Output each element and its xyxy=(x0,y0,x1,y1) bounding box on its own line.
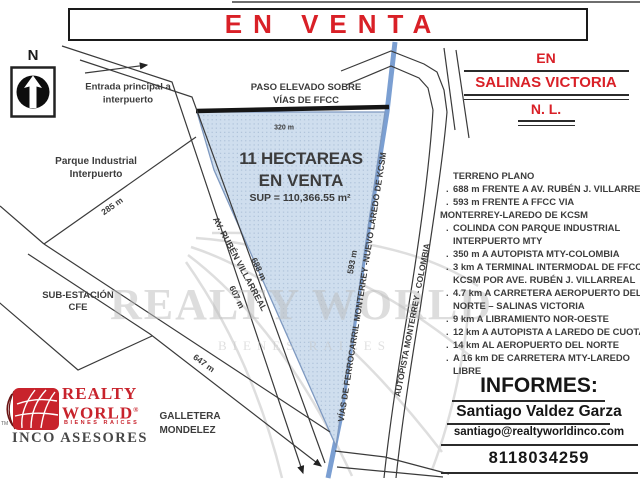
compass-rose-icon xyxy=(10,66,56,119)
detail-line: .14 km AL AEROPUERTO DEL NORTE xyxy=(440,338,640,351)
location-line1: EN xyxy=(454,50,638,66)
detail-text: 593 m FRENTE A FFCC VIA xyxy=(453,196,574,207)
detail-text: KCSM POR AVE. RUBÉN J. VILLARREAL xyxy=(453,274,635,285)
detail-line: INTERPUERTO MTY xyxy=(440,234,640,247)
contact-phone: 8118034259 xyxy=(440,449,638,468)
detail-line: MONTERREY-LAREDO DE KCSM xyxy=(440,208,640,221)
registered-mark: ® xyxy=(133,406,139,414)
detail-bullet: . xyxy=(446,182,449,195)
rule xyxy=(518,120,575,122)
logo-world-text: WORLD® xyxy=(62,402,139,422)
property-title-line2: EN VENTA xyxy=(259,171,344,191)
detail-line: .3 km A TERMINAL INTERMODAL DE FFCC xyxy=(440,260,640,273)
detail-line: KCSM POR AVE. RUBÉN J. VILLARREAL xyxy=(440,273,640,286)
detail-bullet: . xyxy=(446,286,449,299)
logo-tagline: BIENES RAICES xyxy=(64,420,139,426)
compass: N xyxy=(10,46,56,124)
detail-text: 350 m A AUTOPISTA MTY-COLOMBIA xyxy=(453,248,620,259)
location-line2: SALINAS VICTORIA xyxy=(454,74,638,91)
property-details-list: TERRENO PLANO.688 m FRENTE A AV. RUBÉN J… xyxy=(440,169,640,377)
entrance-label: Entrada principal a interpuerto xyxy=(85,82,171,107)
for-sale-banner: EN VENTA xyxy=(68,8,588,41)
compass-north-label: N xyxy=(10,46,56,66)
detail-line: .4.7 km A CARRETERA AEROPUERTO DEL xyxy=(440,286,640,299)
detail-text: INTERPUERTO MTY xyxy=(453,235,542,246)
detail-text: MONTERREY-LAREDO DE KCSM xyxy=(440,209,588,220)
detail-line: .12 km A AUTOPISTA A LAREDO DE CUOTA xyxy=(440,325,640,338)
contact-email: santiago@realtyworldinco.com xyxy=(440,426,638,438)
rule xyxy=(447,423,610,425)
detail-text: 688 m FRENTE A AV. RUBÉN J. VILLARREAL xyxy=(453,183,640,194)
rule xyxy=(464,70,629,72)
bottom-road-upper xyxy=(335,451,449,474)
watermark-text: REALTY WORLD xyxy=(110,279,493,330)
parque-edge-nw xyxy=(0,206,44,244)
detail-text: COLINDA CON PARQUE INDUSTRIAL xyxy=(453,222,620,233)
cfe-substation-label: SUB-ESTACIÓN CFE xyxy=(42,290,114,314)
parque-edge-285 xyxy=(44,137,196,244)
realty-world-globe-icon xyxy=(2,384,64,434)
tm-mark: TM xyxy=(1,421,8,427)
logo-company: INCO ASESORES xyxy=(12,430,148,447)
watermark-subtext: BIENES RAICES xyxy=(218,338,391,354)
rule xyxy=(441,444,638,446)
detail-bullet: . xyxy=(446,325,449,338)
industrial-park-label: Parque Industrial Interpuerto xyxy=(55,155,137,181)
detail-line: NORTE – SALINAS VICTORIA xyxy=(440,299,640,312)
contact-name: Santiago Valdez Garza xyxy=(440,403,638,421)
overpass-label: PASO ELEVADO SOBRE VÍAS DE FFCC xyxy=(251,81,362,107)
detail-line: .COLINDA CON PARQUE INDUSTRIAL xyxy=(440,221,640,234)
detail-text: 3 km A TERMINAL INTERMODAL DE FFCC xyxy=(453,261,640,272)
detail-text: 12 km A AUTOPISTA A LAREDO DE CUOTA xyxy=(453,326,640,337)
location-line3: N. L. xyxy=(454,101,638,117)
detail-bullet: . xyxy=(446,195,449,208)
detail-bullet: . xyxy=(446,338,449,351)
detail-text: 4.7 km A CARRETERA AEROPUERTO DEL xyxy=(453,287,640,298)
detail-bullet: . xyxy=(446,221,449,234)
detail-bullet: . xyxy=(446,351,449,364)
detail-line: .593 m FRENTE A FFCC VIA xyxy=(440,195,640,208)
informes-heading: INFORMES: xyxy=(440,374,638,398)
dim-320: 320 m xyxy=(274,125,294,132)
rule xyxy=(452,400,605,402)
detail-line: .350 m A AUTOPISTA MTY-COLOMBIA xyxy=(440,247,640,260)
detail-line: TERRENO PLANO xyxy=(440,169,640,182)
detail-text: 14 km AL AEROPUERTO DEL NORTE xyxy=(453,339,619,350)
rule xyxy=(464,94,629,96)
detail-text: 9 km A LIBRAMIENTO NOR-OESTE xyxy=(453,313,609,324)
detail-line: .A 16 km DE CARRETERA MTY-LAREDO xyxy=(440,351,640,364)
overpass-bar xyxy=(196,107,389,111)
rule xyxy=(441,472,638,474)
galletera-mondelez-label: GALLETERA MONDELEZ xyxy=(159,410,220,438)
detail-text: NORTE – SALINAS VICTORIA xyxy=(453,300,585,311)
detail-text: A 16 km DE CARRETERA MTY-LAREDO xyxy=(453,352,630,363)
property-surface: SUP = 110,366.55 m² xyxy=(249,192,350,204)
property-title-line1: 11 HECTAREAS xyxy=(239,149,363,169)
detail-bullet: . xyxy=(446,260,449,273)
flyer-root: REALTY WORLD BIENES RAICES EN VENTA N En… xyxy=(0,0,640,480)
banner-title: EN VENTA xyxy=(214,9,443,40)
detail-line: .688 m FRENTE A AV. RUBÉN J. VILLARREAL xyxy=(440,182,640,195)
logo-realty-text: REALTY xyxy=(62,386,137,402)
detail-bullet: . xyxy=(446,247,449,260)
detail-line: .9 km A LIBRAMIENTO NOR-OESTE xyxy=(440,312,640,325)
detail-text: TERRENO PLANO xyxy=(453,170,534,181)
detail-bullet: . xyxy=(446,312,449,325)
rule xyxy=(518,125,575,127)
